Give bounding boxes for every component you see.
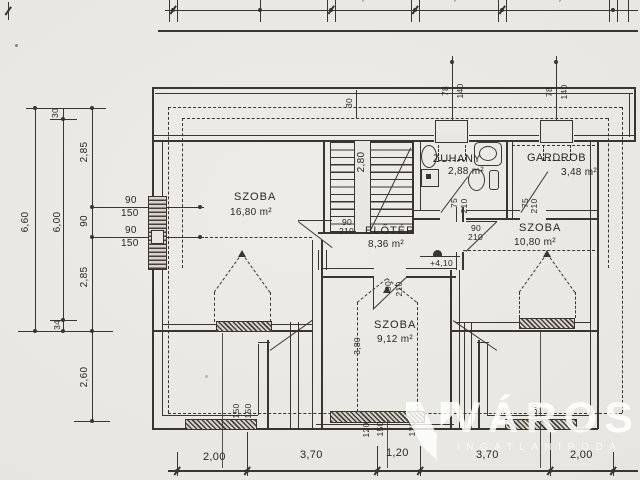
dim-leader	[556, 56, 557, 120]
dim-label: 210	[528, 186, 540, 226]
wall-line	[597, 140, 599, 429]
wall-line	[326, 250, 327, 270]
wall-line	[634, 87, 636, 142]
wall-line	[258, 344, 259, 415]
area-label: 16,80 m²	[230, 208, 272, 219]
wall-line	[466, 218, 520, 220]
room-label: SZOBA	[519, 223, 561, 235]
wall-line	[546, 210, 598, 211]
dim-label: 150	[374, 409, 386, 449]
wall-line	[450, 330, 598, 332]
watermark-subtitle: INGATLANIRODA	[457, 442, 622, 453]
dim-label: 120	[360, 410, 372, 450]
dim-label: 6,00	[51, 202, 63, 242]
wall-line	[406, 276, 456, 278]
dim-label: 2,00	[203, 452, 226, 464]
wall-line	[462, 252, 464, 270]
dim-tick	[335, 0, 336, 22]
dim-line	[35, 108, 36, 332]
room-label: SZOBA	[374, 320, 416, 332]
scan-speck	[205, 375, 208, 378]
level-flag	[433, 250, 442, 256]
dim-label: 34	[51, 305, 63, 345]
wall-line	[162, 268, 163, 415]
dim-label: 210	[458, 186, 470, 226]
watermark-title: VÁROSI	[452, 394, 640, 443]
sink-basin	[479, 146, 497, 161]
railing-hatch	[519, 318, 575, 329]
wall-line	[312, 240, 313, 429]
dim-tick	[506, 0, 507, 22]
area-label: 8,36 m²	[368, 240, 404, 251]
dim-tick	[419, 0, 420, 22]
dim-label: 2,90	[552, 0, 575, 4]
dim-dot	[33, 329, 37, 333]
dim-label: 6,60	[19, 202, 31, 242]
dim-label: 140	[454, 71, 466, 111]
wall-line	[330, 140, 331, 232]
wall-line	[512, 140, 513, 218]
roof-pitch-dashed	[270, 292, 271, 322]
wall-line	[406, 268, 456, 269]
window-frame	[467, 120, 468, 143]
door-swing-line	[298, 220, 332, 221]
window-frame	[540, 120, 541, 143]
dim-line	[168, 470, 638, 472]
area-label: 9,12 m²	[377, 335, 413, 346]
dim-label: 90	[78, 201, 90, 241]
wall-line	[456, 252, 457, 270]
dim-leader	[356, 90, 357, 118]
dim-dot	[198, 205, 202, 209]
room-label: GARDROB	[527, 153, 586, 165]
dim-dot	[90, 106, 94, 110]
dashed-roof-line	[622, 107, 623, 413]
room-label: ELŐTÉR	[365, 226, 415, 238]
dim-label: 2,20	[355, 0, 378, 4]
dim-tick	[177, 0, 178, 22]
room-label: ZUHANY	[433, 154, 481, 166]
wall-line	[590, 140, 591, 415]
dim-dot	[90, 235, 94, 239]
roof-pitch-dashed	[547, 253, 576, 293]
dim-dot	[33, 106, 37, 110]
dim-dot	[611, 8, 615, 12]
dim-label: 2,85	[78, 132, 90, 172]
wall-line	[506, 140, 508, 218]
dim-line	[165, 10, 638, 11]
window-frame	[540, 120, 572, 121]
window-frame	[435, 120, 436, 143]
dim-label: 90	[125, 196, 137, 207]
dim-tick	[609, 0, 610, 22]
wall-line	[412, 210, 440, 211]
dim-dot	[198, 235, 202, 239]
dim-dot	[90, 205, 94, 209]
dim-dot	[554, 60, 558, 64]
window-frame	[540, 142, 572, 143]
wall-line	[298, 322, 299, 429]
dim-label: 2,40	[447, 0, 470, 4]
centerline	[222, 333, 223, 468]
area-label: 10,80 m²	[514, 238, 556, 249]
arrow-head	[543, 250, 551, 257]
level-marker	[420, 256, 460, 257]
dim-label: 150	[230, 391, 242, 431]
dim-line	[92, 108, 93, 421]
dashed-roof-line	[182, 118, 608, 119]
floor-plan-sheet: 2,20 2,40 2,90 6,60 6,00 30 2,85 90 2,85…	[0, 0, 640, 480]
wall-line	[290, 322, 291, 429]
scan-speck	[15, 44, 18, 47]
area-label: 3,48 m²	[561, 168, 597, 179]
arrow-head	[383, 286, 391, 293]
dashed-roof-line	[205, 237, 312, 238]
wall-line	[321, 240, 323, 429]
dim-label: 78	[543, 72, 555, 112]
dim-label: 30	[343, 83, 355, 123]
wall-line	[412, 218, 440, 220]
dim-label: 210	[339, 227, 354, 236]
area-label: 2,88 m²	[448, 167, 484, 178]
wall-line	[546, 218, 598, 220]
door-swing-line	[373, 277, 374, 309]
dim-dot	[61, 117, 65, 121]
dim-line	[63, 108, 64, 332]
dim-label: 2,60	[78, 357, 90, 397]
dim-dot	[90, 329, 94, 333]
dim-label: 3,80	[351, 326, 363, 366]
window-frame	[435, 120, 468, 121]
railing-hatch	[216, 321, 272, 332]
dim-dot	[258, 8, 262, 12]
wall-line	[322, 276, 374, 278]
dim-label: 150	[121, 239, 139, 250]
wall-line	[323, 140, 325, 232]
dim-leader	[452, 56, 453, 120]
arrow-head	[238, 250, 246, 257]
roof-pitch-dashed	[242, 253, 271, 293]
roof-pitch-dashed	[519, 292, 520, 318]
toilet-cistern	[489, 170, 499, 190]
dim-label: 210	[468, 233, 483, 242]
dim-label: 2,85	[78, 257, 90, 297]
roof-pitch-dashed	[214, 292, 215, 322]
watermark-logo-icon	[406, 402, 454, 460]
level-label: +4,10	[430, 259, 453, 268]
wall-line	[162, 140, 163, 196]
dim-label: 150	[121, 209, 139, 220]
wall-line	[466, 210, 520, 211]
dashed-roof-line	[512, 145, 595, 146]
wall-line	[456, 207, 457, 222]
door-swing-line	[466, 221, 497, 222]
dim-label: 150	[242, 391, 254, 431]
roof-pitch-dashed	[214, 253, 243, 293]
dim-tick	[628, 0, 629, 22]
window-sill	[151, 230, 164, 244]
dim-line	[26, 108, 106, 109]
dim-label: 78	[439, 71, 451, 111]
roof-pitch-dashed	[417, 302, 418, 412]
dim-dot	[90, 419, 94, 423]
wall-line	[318, 250, 319, 270]
wall-line	[258, 342, 270, 343]
wall-line	[267, 340, 269, 429]
dim-label: 140	[558, 72, 570, 112]
room-label: SZOBA	[234, 192, 276, 204]
dashed-roof-line	[463, 250, 595, 251]
dim-label: 90	[125, 226, 137, 237]
dim-label: 30	[49, 93, 61, 133]
dim-line	[158, 30, 638, 32]
dim-tick	[617, 0, 618, 22]
dim-dot	[450, 60, 454, 64]
dim-label: 3,70	[300, 450, 323, 462]
dashed-roof-line	[168, 107, 169, 413]
door-swing-line	[298, 221, 333, 248]
wall-line	[322, 268, 374, 269]
shower-drain	[426, 174, 431, 179]
roof-pitch-dashed	[519, 253, 548, 293]
roof-pitch-dashed	[575, 292, 576, 318]
window-frame	[572, 120, 573, 143]
wall-line	[629, 93, 630, 137]
wall-line	[462, 207, 464, 222]
window-frame	[435, 142, 468, 143]
centerline	[387, 420, 388, 468]
dim-label: 2,80	[355, 142, 367, 182]
